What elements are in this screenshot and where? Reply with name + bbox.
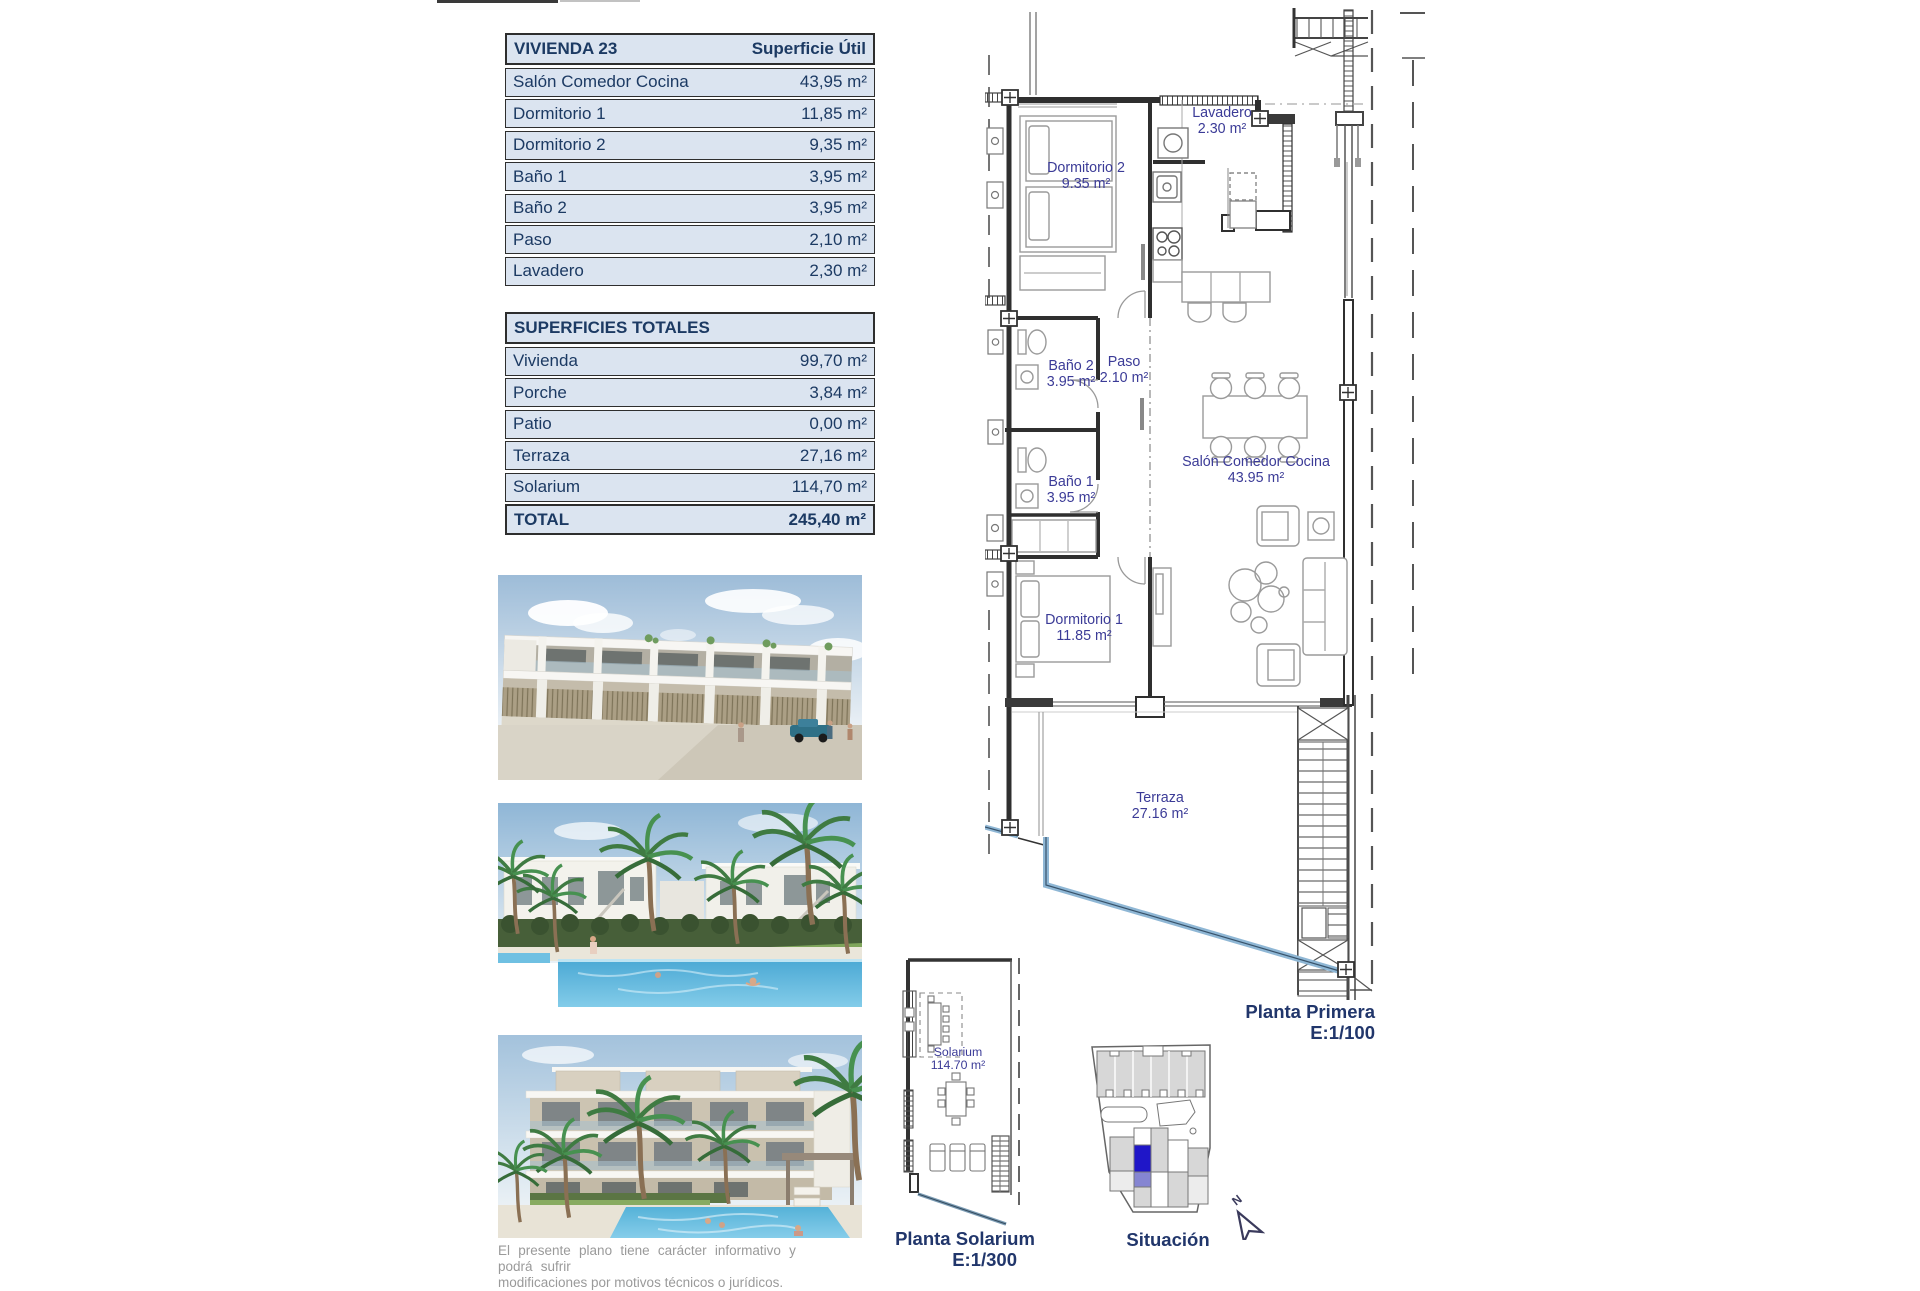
room-area-lavadero: 2.30 m² xyxy=(1198,121,1247,137)
table-row: Salón Comedor Cocina43,95 m² xyxy=(505,68,875,97)
room-area-terraza: 27.16 m² xyxy=(1132,806,1189,822)
photo-apartment-pool-svg xyxy=(498,1035,862,1238)
room-area-solarium: 114.70 m² xyxy=(931,1058,985,1072)
room-area-paso: 2.10 m² xyxy=(1100,370,1149,386)
table-row: Dormitorio 29,35 m² xyxy=(505,131,875,160)
table-superficies-totales: SUPERFICIES TOTALES Vivienda99,70 m² Por… xyxy=(505,312,875,538)
table-header-row: SUPERFICIES TOTALES xyxy=(505,312,875,344)
photo-pool-garden xyxy=(498,803,862,1007)
highlighted-unit-lower xyxy=(1134,1172,1151,1187)
table-row: Baño 23,95 m² xyxy=(505,194,875,223)
room-label-salon: Salón Comedor Cocina xyxy=(1182,454,1330,470)
table-title: VIVIENDA 23 xyxy=(514,39,617,59)
table-row: Baño 13,95 m² xyxy=(505,162,875,191)
table-header-row: VIVIENDA 23 Superficie Útil xyxy=(505,33,875,65)
photo-apartment-pool xyxy=(498,1035,862,1238)
table-row: Patio0,00 m² xyxy=(505,410,875,439)
floorplan-svg: Lavadero 2.30 m² Dormitorio 2 9.35 m² Ba… xyxy=(985,0,1425,1045)
floorplan-caption-title: Planta Primera xyxy=(1125,1001,1375,1022)
room-label-terraza: Terraza xyxy=(1136,790,1184,806)
table-header-value: Superficie Útil xyxy=(752,39,866,59)
table-superficie-util: VIVIENDA 23 Superficie Útil Salón Comedo… xyxy=(505,33,875,288)
solarium-scale: E:1/300 xyxy=(867,1249,1017,1270)
table-row: Paso2,10 m² xyxy=(505,225,875,254)
neighbour-fixtures xyxy=(985,93,1005,596)
highlighted-unit xyxy=(1134,1145,1151,1172)
photo-exterior-street xyxy=(498,575,862,780)
room-label-lavadero: Lavadero xyxy=(1192,105,1252,121)
room-area-salon: 43.95 m² xyxy=(1228,470,1285,486)
table-title: SUPERFICIES TOTALES xyxy=(514,318,710,338)
room-area-dormitorio1: 11.85 m² xyxy=(1056,628,1112,644)
disclaimer-line1: El presente plano tiene carácter informa… xyxy=(498,1243,820,1275)
sitting-person xyxy=(590,936,597,954)
room-label-paso: Paso xyxy=(1108,354,1141,370)
solarium-labels: Solarium 114.70 m² xyxy=(931,1045,985,1072)
room-label-solarium: Solarium xyxy=(934,1045,983,1059)
table-row: Lavadero2,30 m² xyxy=(505,257,875,286)
photo-pool-garden-svg xyxy=(498,803,862,1007)
room-area-bano1: 3.95 m² xyxy=(1047,490,1096,506)
photo-exterior-street-svg xyxy=(498,575,862,780)
table-row: Porche3,84 m² xyxy=(505,378,875,407)
solarium-caption: Planta Solarium xyxy=(865,1228,1065,1249)
room-label-dormitorio1: Dormitorio 1 xyxy=(1045,612,1123,628)
disclaimer-line2: modificaciones por motivos técnicos o ju… xyxy=(498,1275,820,1291)
floorplan-planta-primera: Lavadero 2.30 m² Dormitorio 2 9.35 m² Ba… xyxy=(985,0,1425,1045)
room-label-bano1: Baño 1 xyxy=(1048,474,1093,490)
cropped-top-graphic-light xyxy=(560,0,640,2)
north-label: N xyxy=(1229,1192,1244,1208)
table-row: Dormitorio 111,85 m² xyxy=(505,99,875,128)
room-label-dormitorio2: Dormitorio 2 xyxy=(1047,160,1125,176)
site-top-block xyxy=(1097,1046,1205,1097)
table-row: Vivienda99,70 m² xyxy=(505,347,875,376)
room-area-dormitorio2: 9.35 m² xyxy=(1062,176,1111,192)
floorplan-caption: Planta Primera E:1/100 xyxy=(1125,1001,1375,1043)
table-total-row: TOTAL245,40 m² xyxy=(505,504,875,535)
solarium-furniture xyxy=(903,991,1009,1192)
stairs-bottom xyxy=(1298,695,1355,1000)
situacion-svg: N xyxy=(1080,1040,1265,1240)
table-row: Solarium114,70 m² xyxy=(505,473,875,502)
disclaimer: El presente plano tiene carácter informa… xyxy=(498,1243,820,1291)
cropped-top-graphic xyxy=(437,0,558,3)
table-row: Terraza27,16 m² xyxy=(505,441,875,470)
room-area-bano2: 3.95 m² xyxy=(1047,374,1096,390)
situacion-map: N xyxy=(1080,1040,1265,1240)
room-label-bano2: Baño 2 xyxy=(1048,358,1093,374)
situacion-caption: Situación xyxy=(1093,1229,1243,1250)
